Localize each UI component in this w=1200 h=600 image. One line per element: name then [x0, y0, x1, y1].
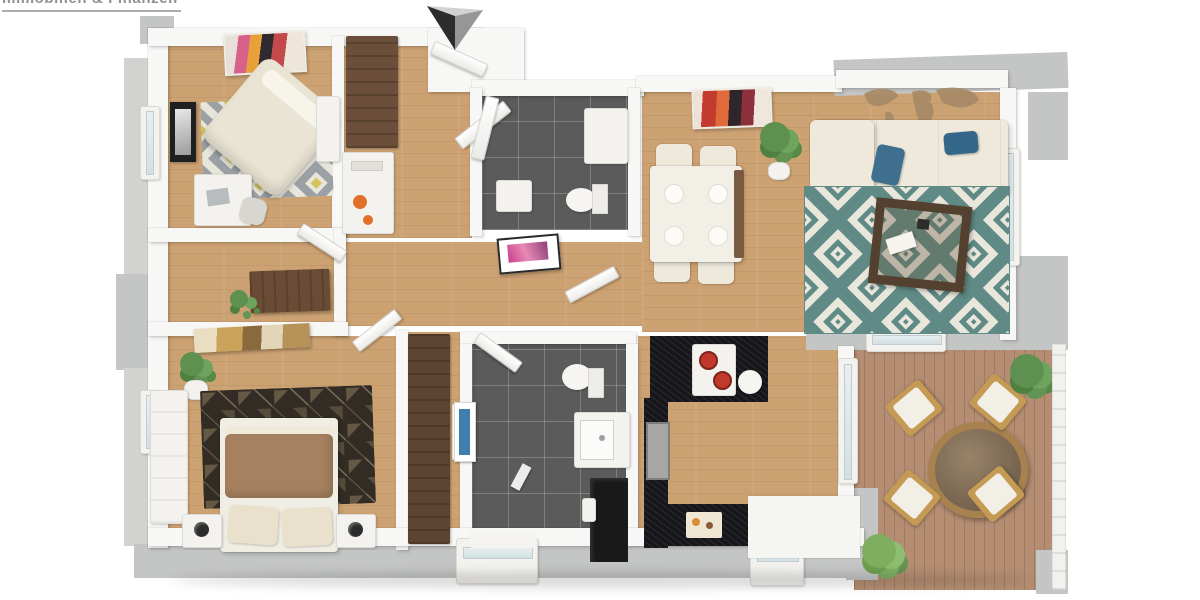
kitchen-sink	[646, 422, 670, 480]
bath-mat	[470, 532, 536, 548]
terrace-plant-icon	[862, 534, 896, 568]
wall-bathroom-top-right	[628, 88, 640, 236]
toilet-tank	[588, 368, 604, 398]
wall-bathroom-top-left	[470, 88, 482, 236]
sofa-pillow-blue	[943, 131, 979, 156]
bedroom-plant-icon	[180, 352, 204, 376]
pot-icon	[699, 351, 718, 370]
floorplan-canvas: Immobilien & Finanzen	[0, 0, 1200, 600]
north-arrow-icon	[424, 0, 486, 52]
terrace-railing	[1052, 344, 1066, 590]
wall-bedroom-bottom-right	[396, 330, 408, 550]
hall-console	[249, 269, 330, 314]
wall-art-pink	[497, 233, 562, 274]
plate	[708, 184, 728, 204]
food-icon	[706, 522, 713, 529]
dining-table	[650, 166, 742, 262]
table-wood-edge	[734, 170, 744, 258]
orange-decor-icon	[363, 215, 373, 225]
shower-head	[582, 498, 596, 522]
sideboard	[316, 96, 340, 162]
toilet-tank	[592, 184, 608, 214]
lamp-icon	[348, 522, 363, 537]
exterior-wall-right-upper	[1028, 92, 1068, 160]
bed-pillow	[227, 504, 280, 545]
sink-basin	[580, 420, 614, 460]
coffee-table	[868, 197, 972, 293]
vanity-sink	[574, 412, 630, 468]
potted-plant-dining-icon	[760, 122, 790, 152]
table-decor	[917, 219, 930, 230]
framed-photo	[170, 102, 196, 162]
hall-plant-icon	[230, 290, 248, 308]
plate	[708, 226, 728, 246]
round-plate	[738, 370, 762, 394]
shelf-unit	[342, 152, 394, 234]
window-left-bedroom-top	[140, 106, 160, 180]
magazine	[885, 231, 917, 255]
shower-tray-top	[584, 108, 628, 164]
shelf-books	[351, 161, 383, 171]
plate	[664, 226, 684, 246]
hob	[692, 344, 736, 396]
faucet-icon	[599, 435, 605, 441]
wall-top-bathroom	[472, 80, 644, 96]
towel-blue	[454, 402, 476, 462]
door-kitchen-terrace	[838, 358, 858, 484]
duvet-brown	[225, 434, 333, 498]
food-icon	[692, 518, 700, 526]
closet-white	[150, 390, 188, 524]
pot-icon	[713, 371, 732, 390]
plate	[664, 184, 684, 204]
laptop	[206, 188, 230, 207]
plant-pot	[768, 162, 790, 180]
wardrobe-hall	[408, 334, 450, 544]
brand-logo: Immobilien & Finanzen	[2, 0, 181, 12]
terrace-plant-icon	[1010, 354, 1044, 388]
lamp-icon	[194, 522, 209, 537]
wardrobe-top	[346, 36, 398, 148]
bed-pillow	[281, 507, 333, 548]
building-shadow	[170, 572, 1030, 588]
wall-art-red	[691, 87, 772, 130]
orange-decor-icon	[353, 195, 367, 209]
kitchen-peninsula	[748, 496, 860, 558]
bed-bottom	[220, 418, 338, 552]
floor-hallway	[166, 242, 642, 326]
cutting-board	[686, 512, 722, 538]
sink-top-bath	[496, 180, 532, 212]
